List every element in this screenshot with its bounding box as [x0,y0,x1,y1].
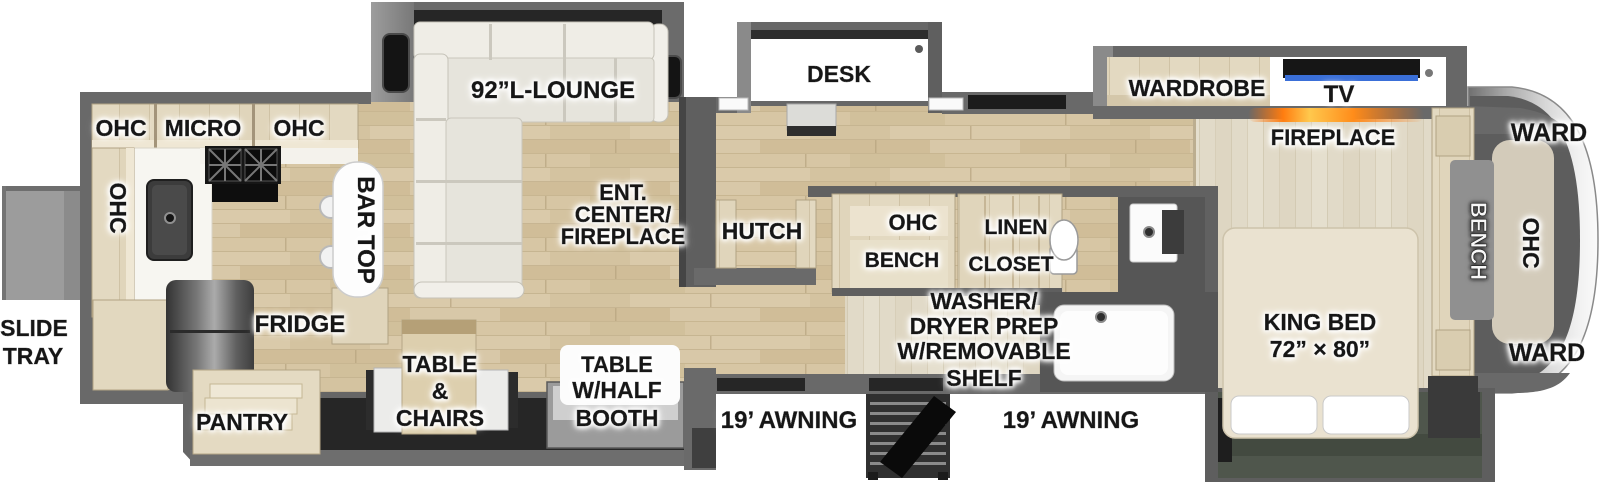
svg-text:&: & [432,378,449,404]
svg-text:BOOTH: BOOTH [575,405,658,431]
svg-text:SHELF: SHELF [946,365,1021,391]
svg-text:WARD: WARD [1509,339,1585,367]
svg-text:OHC: OHC [273,115,324,141]
svg-text:92”L-LOUNGE: 92”L-LOUNGE [471,77,635,104]
svg-text:CLOSET: CLOSET [968,253,1053,276]
svg-text:OHC: OHC [105,182,131,233]
svg-text:WASHER/: WASHER/ [930,288,1038,314]
svg-text:72” × 80”: 72” × 80” [1270,336,1370,362]
svg-text:W/HALF: W/HALF [572,377,661,403]
svg-text:WARDROBE: WARDROBE [1129,75,1266,101]
svg-text:MICRO: MICRO [165,115,242,141]
svg-text:KING BED: KING BED [1264,309,1376,335]
svg-text:SLIDE: SLIDE [0,315,68,341]
svg-text:TABLE: TABLE [403,351,478,377]
svg-text:OHC: OHC [95,115,146,141]
svg-text:TV: TV [1324,81,1355,108]
svg-text:OHC: OHC [889,210,938,235]
svg-text:WARD: WARD [1511,119,1587,147]
svg-text:19’ AWNING: 19’ AWNING [1003,407,1139,434]
svg-text:PANTRY: PANTRY [196,409,288,435]
svg-text:DESK: DESK [807,61,871,87]
svg-text:HUTCH: HUTCH [722,218,803,244]
svg-text:BAR TOP: BAR TOP [352,176,379,284]
svg-text:FIREPLACE: FIREPLACE [1271,125,1396,150]
svg-text:DRYER PREP: DRYER PREP [910,313,1059,339]
svg-text:W/REMOVABLE: W/REMOVABLE [897,338,1070,364]
svg-text:BENCH: BENCH [1466,202,1491,280]
svg-text:FRIDGE: FRIDGE [255,311,346,338]
svg-text:FIREPLACE: FIREPLACE [561,224,686,249]
svg-text:CHAIRS: CHAIRS [396,405,484,431]
svg-text:BENCH: BENCH [865,249,940,272]
svg-text:TABLE: TABLE [581,352,653,377]
svg-text:OHC: OHC [1518,217,1544,268]
svg-text:TRAY: TRAY [3,343,64,369]
svg-text:19’ AWNING: 19’ AWNING [721,407,857,434]
svg-text:LINEN: LINEN [985,216,1048,239]
